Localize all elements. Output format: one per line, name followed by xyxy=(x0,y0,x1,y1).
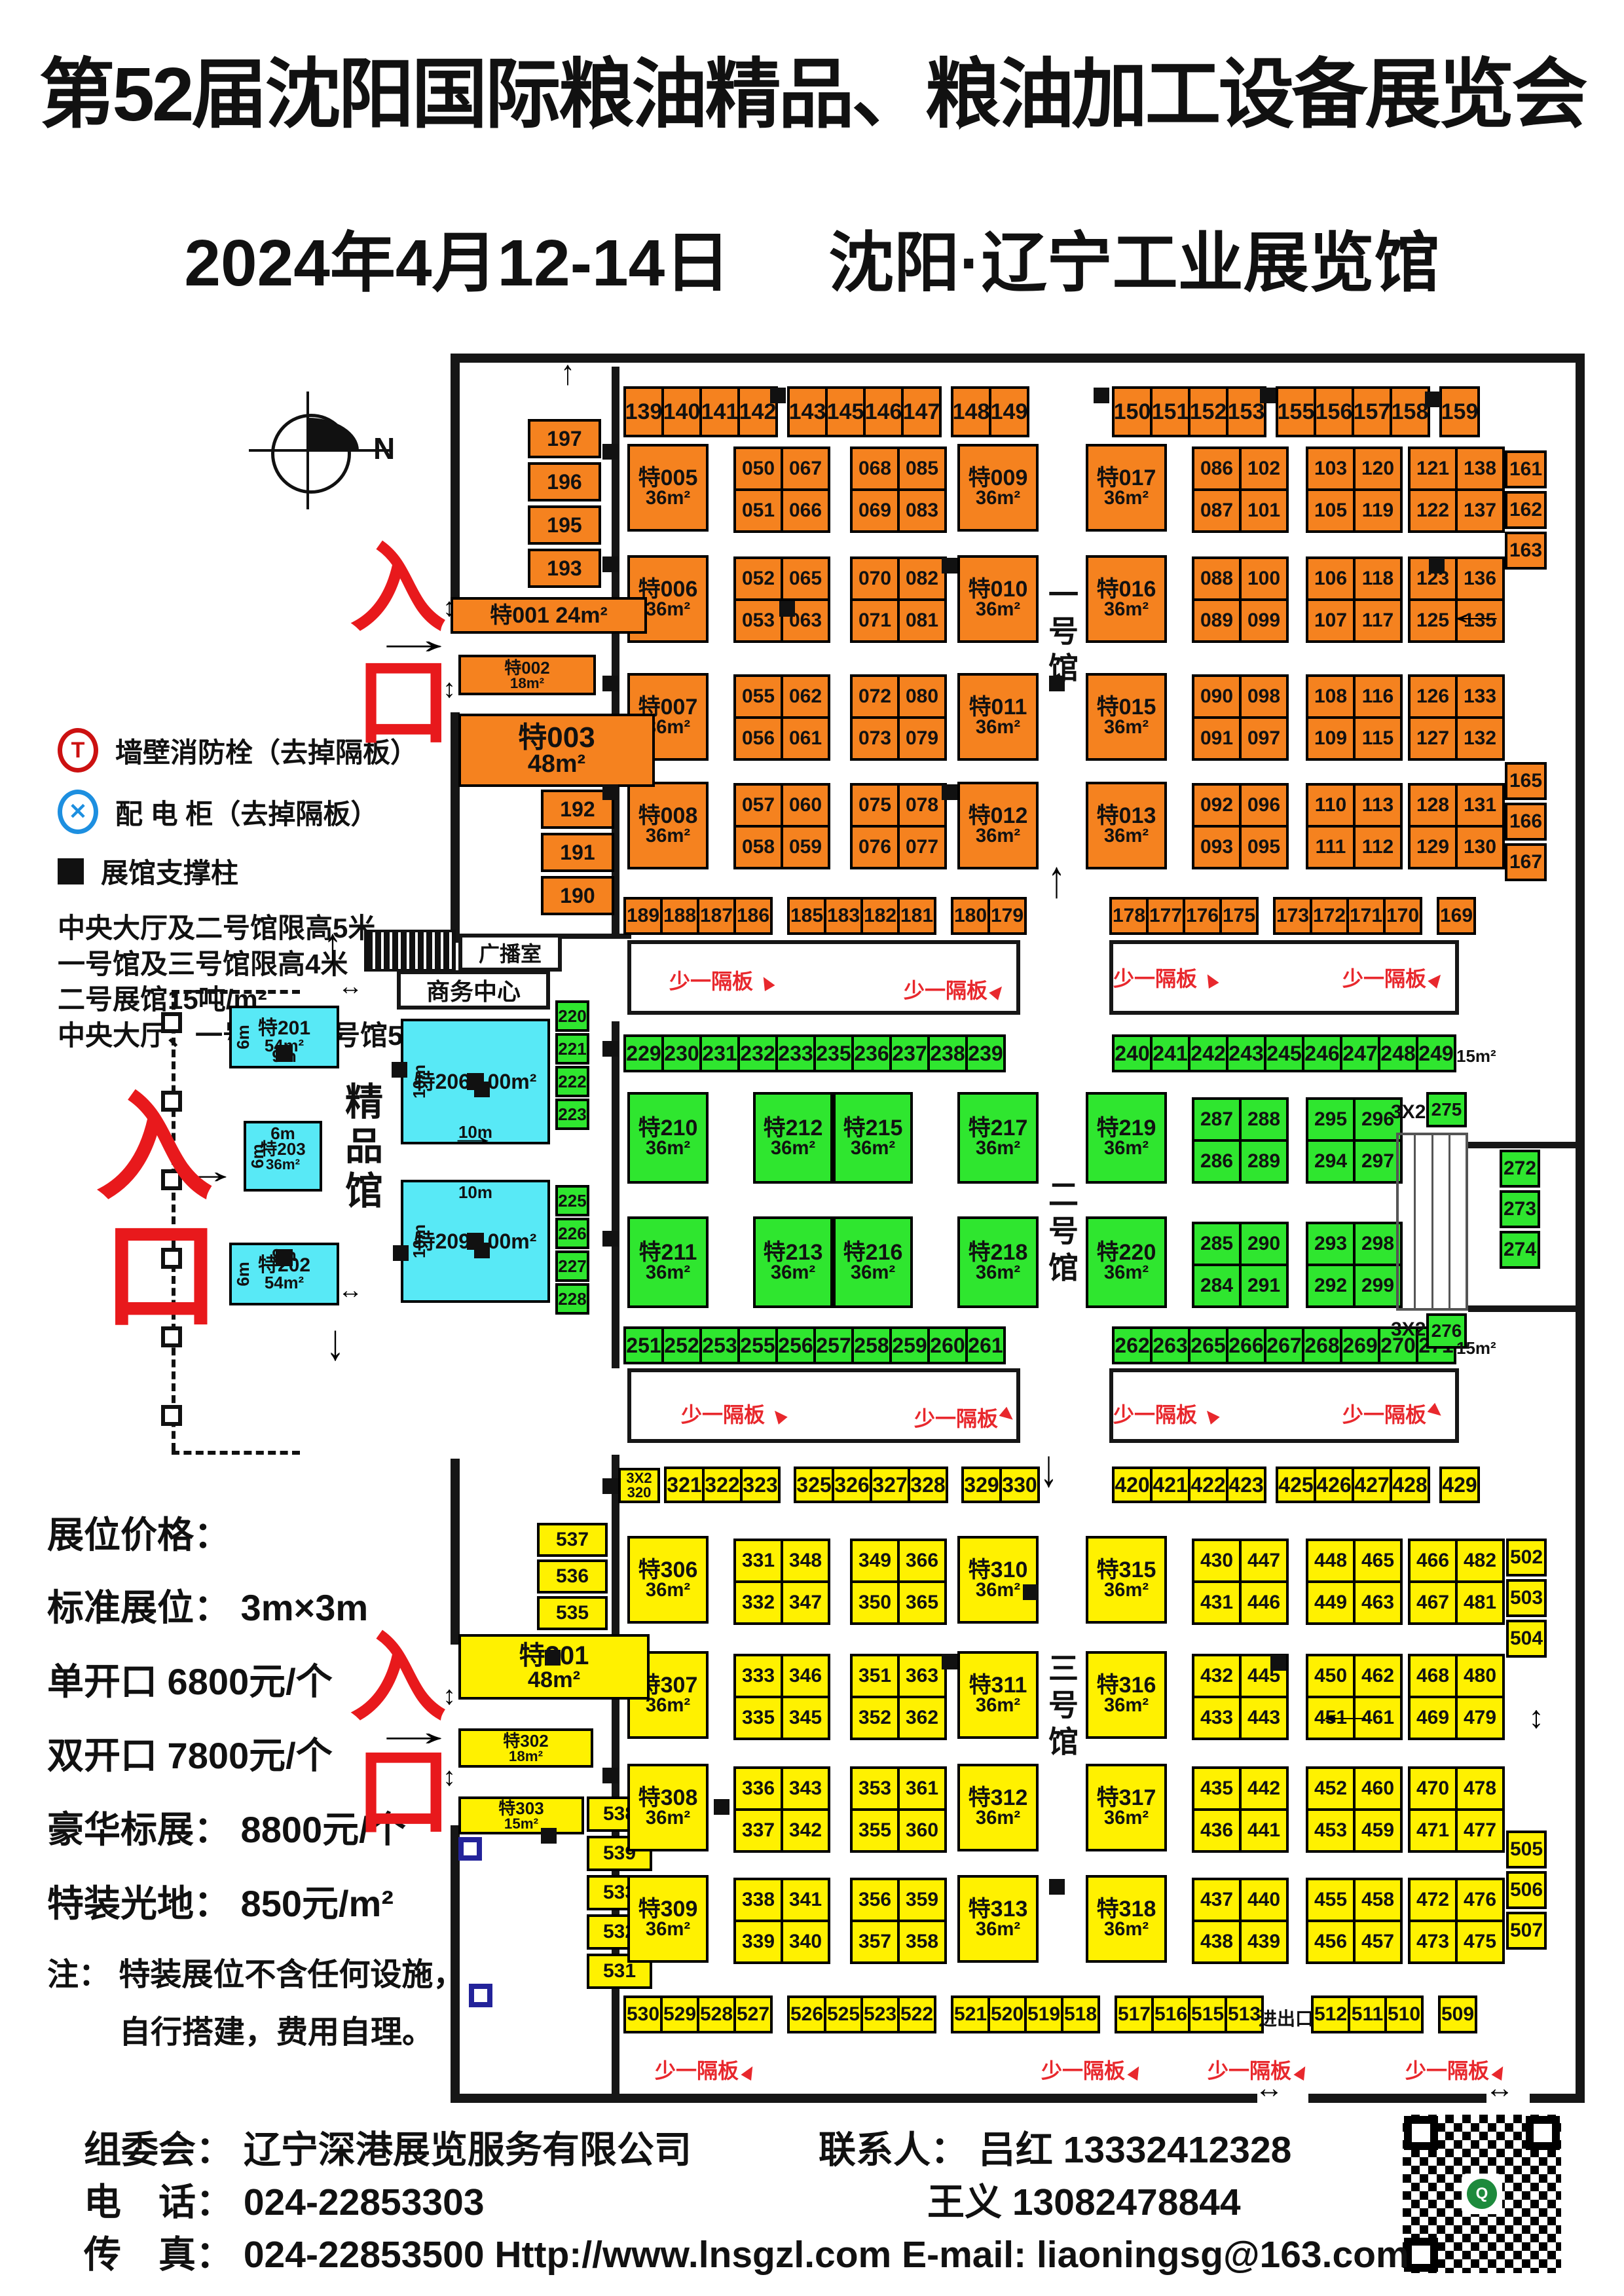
booth-436: 436 xyxy=(1192,1808,1242,1853)
booth-196: 196 xyxy=(528,462,601,501)
booth-252: 252 xyxy=(661,1326,702,1364)
booth-358: 358 xyxy=(897,1920,947,1964)
wall xyxy=(451,354,460,623)
booth-537: 537 xyxy=(537,1523,608,1557)
pillar-icon xyxy=(1049,676,1065,691)
booth-246: 246 xyxy=(1302,1034,1342,1072)
booth-433: 433 xyxy=(1192,1696,1242,1740)
booth-257: 257 xyxy=(813,1326,854,1364)
dimension-label: 6m xyxy=(249,1144,266,1169)
north-label: N xyxy=(373,431,395,466)
wall xyxy=(1468,1305,1576,1312)
booth-426: 426 xyxy=(1314,1467,1354,1503)
booth-231: 231 xyxy=(699,1034,740,1072)
booth-345: 345 xyxy=(781,1696,830,1740)
booth-360: 360 xyxy=(897,1808,947,1853)
booth-108: 108 xyxy=(1306,674,1356,719)
booth-080: 080 xyxy=(897,674,947,719)
booth-113: 113 xyxy=(1353,783,1403,828)
red-arrow-icon xyxy=(1127,2058,1147,2081)
booth-478: 478 xyxy=(1455,1766,1505,1811)
pillar-icon xyxy=(602,1768,618,1783)
booth-458: 458 xyxy=(1353,1878,1403,1922)
booth-155: 155 xyxy=(1276,386,1316,437)
qr-logo: Q xyxy=(1462,2174,1502,2214)
qr-code: Q xyxy=(1403,2115,1561,2273)
booth-090: 090 xyxy=(1192,674,1242,719)
booth-106: 106 xyxy=(1306,556,1356,601)
booth-527: 527 xyxy=(733,1995,773,2033)
booth-082: 082 xyxy=(897,556,947,601)
booth-536: 536 xyxy=(537,1559,608,1594)
dashed-boundary xyxy=(172,1451,300,1455)
booth-437: 437 xyxy=(1192,1878,1242,1922)
booth-463: 463 xyxy=(1353,1580,1403,1625)
booth-149: 149 xyxy=(989,386,1029,437)
booth-457: 457 xyxy=(1353,1920,1403,1964)
pillar-icon xyxy=(942,784,957,800)
booth-132: 132 xyxy=(1455,716,1505,761)
booth-067: 067 xyxy=(781,446,830,491)
booth-068: 068 xyxy=(850,446,900,491)
booth-233: 233 xyxy=(775,1034,816,1072)
booth-262: 262 xyxy=(1112,1326,1153,1364)
booth-443: 443 xyxy=(1239,1696,1289,1740)
qr-finder xyxy=(1404,2116,1438,2150)
booth-特013: 特01336m² xyxy=(1086,782,1167,869)
booth-225: 225 xyxy=(555,1185,589,1216)
booth-220: 220 xyxy=(555,1000,589,1032)
booth-223: 223 xyxy=(555,1099,589,1130)
partition-note: 少一隔板 xyxy=(904,974,1009,1004)
booth-452: 452 xyxy=(1306,1766,1356,1811)
booth-141: 141 xyxy=(699,386,740,437)
booth-191: 191 xyxy=(541,833,614,872)
booth-092: 092 xyxy=(1192,783,1242,828)
booth-238: 238 xyxy=(927,1034,968,1072)
booth-521: 521 xyxy=(951,1995,990,2033)
booth-131: 131 xyxy=(1455,783,1505,828)
booth-435: 435 xyxy=(1192,1766,1242,1811)
booth-472: 472 xyxy=(1408,1878,1458,1922)
booth-232: 232 xyxy=(737,1034,778,1072)
booth-350: 350 xyxy=(850,1580,900,1625)
red-arrow-icon xyxy=(1199,966,1219,989)
booth-519: 519 xyxy=(1024,1995,1063,2033)
booth-120: 120 xyxy=(1353,446,1403,491)
booth-特220: 特22036m² xyxy=(1086,1216,1167,1308)
booth-227: 227 xyxy=(555,1250,589,1282)
hall-label: 二号馆 xyxy=(1040,1178,1083,1288)
booth-529: 529 xyxy=(660,1995,699,2033)
booth-516: 516 xyxy=(1151,1995,1190,2033)
power-box-icon xyxy=(458,1837,482,1861)
booth-178: 178 xyxy=(1109,897,1149,935)
pillar-icon xyxy=(1049,1879,1065,1895)
booth-349: 349 xyxy=(850,1539,900,1583)
booth-058: 058 xyxy=(733,825,783,869)
booth-523: 523 xyxy=(860,1995,900,2033)
booth-441: 441 xyxy=(1239,1808,1289,1853)
booth-特203: 特20336m²6m6m xyxy=(244,1121,322,1192)
booth-179: 179 xyxy=(987,897,1027,935)
booth-062: 062 xyxy=(781,674,830,719)
pillar-icon xyxy=(602,1041,618,1057)
phone: 电 话： 024-22853303 xyxy=(84,2181,485,2223)
booth-446: 446 xyxy=(1239,1580,1289,1625)
contact-person-2: 王义 13082478844 xyxy=(927,2172,1241,2226)
booth-121: 121 xyxy=(1408,446,1458,491)
booth-057: 057 xyxy=(733,783,783,828)
booth-326: 326 xyxy=(832,1467,872,1503)
booth-111: 111 xyxy=(1306,825,1356,869)
booth-421: 421 xyxy=(1150,1467,1190,1503)
booth-468: 468 xyxy=(1408,1654,1458,1698)
booth-526: 526 xyxy=(787,1995,826,2033)
booth-056: 056 xyxy=(733,716,783,761)
booth-229: 229 xyxy=(623,1034,664,1072)
dimension-label: 10m xyxy=(458,1184,492,1201)
booth-462: 462 xyxy=(1353,1654,1403,1698)
dimension-label: 6m xyxy=(234,1025,251,1049)
booth-079: 079 xyxy=(897,716,947,761)
booth-522: 522 xyxy=(897,1995,936,2033)
booth-247: 247 xyxy=(1340,1034,1380,1072)
compass-icon xyxy=(306,392,309,509)
booth-243: 243 xyxy=(1226,1034,1266,1072)
booth-286: 286 xyxy=(1192,1139,1242,1184)
booth-特317: 特31736m² xyxy=(1086,1764,1167,1851)
booth-105: 105 xyxy=(1306,488,1356,533)
booth-特218: 特21836m² xyxy=(957,1216,1039,1308)
direction-arrow-icon: ↓ xyxy=(1040,1442,1058,1495)
booth-471: 471 xyxy=(1408,1808,1458,1853)
booth-193: 193 xyxy=(528,549,601,588)
pillar-icon xyxy=(1425,392,1441,407)
booth-109: 109 xyxy=(1306,716,1356,761)
entrance-label: 入 xyxy=(350,1630,447,1727)
booth-050: 050 xyxy=(733,446,783,491)
booth-235: 235 xyxy=(813,1034,854,1072)
booth-293: 293 xyxy=(1306,1222,1356,1266)
pillar-icon xyxy=(1023,1584,1039,1600)
booth-274: 274 xyxy=(1500,1231,1540,1269)
partition-note: 少一隔板 xyxy=(914,1402,1020,1432)
compass-icon xyxy=(308,418,359,450)
booth-502: 502 xyxy=(1506,1539,1547,1576)
booth-470: 470 xyxy=(1408,1766,1458,1811)
booth-197: 197 xyxy=(528,419,601,458)
booth-特316: 特31636m² xyxy=(1086,1651,1167,1739)
booth-511: 511 xyxy=(1348,1995,1387,2033)
booth-260: 260 xyxy=(927,1326,968,1364)
booth-460: 460 xyxy=(1353,1766,1403,1811)
wall xyxy=(451,354,1585,363)
booth-481: 481 xyxy=(1455,1580,1505,1625)
booth-363: 363 xyxy=(897,1654,947,1698)
booth-479: 479 xyxy=(1455,1696,1505,1740)
booth-161: 161 xyxy=(1505,450,1547,488)
wall xyxy=(1468,1142,1576,1148)
booth-162: 162 xyxy=(1505,491,1547,529)
booth-180: 180 xyxy=(951,897,990,935)
exhibition-floorplan-poster: 第52届沈阳国际粮油精品、粮油加工设备展览会 2024年4月12-14日 沈阳·… xyxy=(0,0,1624,2296)
booth-336: 336 xyxy=(733,1766,783,1811)
booth-182: 182 xyxy=(860,897,900,935)
booth-140: 140 xyxy=(661,386,702,437)
booth-273: 273 xyxy=(1500,1190,1540,1228)
direction-arrow-icon: ↕ xyxy=(1528,1702,1544,1734)
wall xyxy=(451,1459,460,1645)
wall xyxy=(1576,354,1585,2103)
booth-226: 226 xyxy=(555,1218,589,1249)
hall-label: 精品馆 xyxy=(333,1082,388,1215)
booth-101: 101 xyxy=(1239,488,1289,533)
booth-331: 331 xyxy=(733,1539,783,1583)
booth-098: 098 xyxy=(1239,674,1289,719)
booth-特002: 特00218m² xyxy=(458,655,596,695)
pillar-icon xyxy=(602,1478,618,1494)
booth-221: 221 xyxy=(555,1033,589,1065)
booth-147: 147 xyxy=(901,386,942,437)
booth-329: 329 xyxy=(961,1467,1002,1503)
pillar-icon xyxy=(276,1249,293,1266)
booth-275: 275 xyxy=(1426,1092,1467,1127)
booth-特017: 特01736m² xyxy=(1086,444,1167,532)
pillar-icon xyxy=(474,1082,490,1097)
booth-085: 085 xyxy=(897,446,947,491)
booth-292: 292 xyxy=(1306,1264,1356,1308)
booth-295: 295 xyxy=(1306,1097,1356,1142)
red-arrow-icon xyxy=(1293,2058,1313,2081)
booth-076: 076 xyxy=(850,825,900,869)
booth-420: 420 xyxy=(1112,1467,1153,1503)
booth-特003: 特00348m² xyxy=(458,714,655,787)
booth-151: 151 xyxy=(1150,386,1190,437)
booth-186: 186 xyxy=(733,897,773,935)
pillar-icon xyxy=(1094,388,1109,403)
fax-web-email: 传 真： 024-22853500 Http://www.lnsgzl.com … xyxy=(84,2234,1409,2276)
booth-157: 157 xyxy=(1352,386,1392,437)
booth-特215: 特21536m² xyxy=(833,1092,913,1184)
red-arrow-icon xyxy=(1428,966,1449,989)
booth-525: 525 xyxy=(824,1995,863,2033)
booth-449: 449 xyxy=(1306,1580,1356,1625)
direction-arrow-icon: ↑ xyxy=(561,356,575,391)
booth-071: 071 xyxy=(850,598,900,643)
booth-335: 335 xyxy=(733,1696,783,1740)
booth-195: 195 xyxy=(528,505,601,545)
direction-arrow-icon: ← xyxy=(1441,598,1511,630)
pillar-icon xyxy=(602,676,618,691)
booth-356: 356 xyxy=(850,1878,900,1922)
contact-info: 组委会： 辽宁深港展览服务有限公司 联系人： 吕红 13332412328 电 … xyxy=(84,2120,1409,2277)
red-arrow-icon xyxy=(741,2058,760,2081)
booth-052: 052 xyxy=(733,556,783,601)
booth-453: 453 xyxy=(1306,1808,1356,1853)
direction-arrow-icon: ↓ xyxy=(326,1317,344,1368)
escalator-icon xyxy=(1396,1133,1468,1311)
booth-特308: 特30836m² xyxy=(627,1764,709,1851)
booth-175: 175 xyxy=(1219,897,1259,935)
booth-078: 078 xyxy=(897,783,947,828)
booth-477: 477 xyxy=(1455,1808,1505,1853)
booth-081: 081 xyxy=(897,598,947,643)
booth-256: 256 xyxy=(775,1326,816,1364)
booth-187: 187 xyxy=(697,897,736,935)
booth-特016: 特01636m² xyxy=(1086,555,1167,643)
booth-177: 177 xyxy=(1146,897,1185,935)
booth-330: 330 xyxy=(999,1467,1040,1503)
booth-126: 126 xyxy=(1408,674,1458,719)
booth-173: 173 xyxy=(1273,897,1312,935)
pillar-icon xyxy=(770,388,786,403)
booth-148: 148 xyxy=(951,386,991,437)
pillar-icon xyxy=(541,1828,557,1844)
booth-432: 432 xyxy=(1192,1654,1242,1698)
booth-333: 333 xyxy=(733,1654,783,1698)
pillar-icon xyxy=(393,1245,409,1261)
entrance-label: 口 xyxy=(355,655,452,752)
pillar-icon xyxy=(602,556,618,572)
booth-100: 100 xyxy=(1239,556,1289,601)
partition-note: 少一隔板 xyxy=(655,2054,760,2085)
booth-359: 359 xyxy=(897,1878,947,1922)
booth-069: 069 xyxy=(850,488,900,533)
booth-340: 340 xyxy=(781,1920,830,1964)
qr-finder xyxy=(1526,2116,1560,2150)
booth-475: 475 xyxy=(1455,1920,1505,1964)
booth-特311: 特31136m² xyxy=(957,1651,1039,1739)
booth-365: 365 xyxy=(897,1580,947,1625)
booth-427: 427 xyxy=(1352,1467,1392,1503)
booth-255: 255 xyxy=(737,1326,778,1364)
entrance-label: 入 xyxy=(96,1089,213,1207)
booth-051: 051 xyxy=(733,488,783,533)
text-label: 进出口 xyxy=(1259,2005,1314,2031)
booth-172: 172 xyxy=(1310,897,1349,935)
booth-261: 261 xyxy=(965,1326,1006,1364)
booth-503: 503 xyxy=(1506,1579,1547,1617)
booth-181: 181 xyxy=(897,897,936,935)
direction-arrow-icon: ↔ xyxy=(338,1278,363,1303)
booth-119: 119 xyxy=(1353,488,1403,533)
booth-253: 253 xyxy=(699,1326,740,1364)
dimension-label: 6m xyxy=(270,1125,295,1142)
booth-361: 361 xyxy=(897,1766,947,1811)
booth-289: 289 xyxy=(1239,1139,1289,1184)
booth-366: 366 xyxy=(897,1539,947,1583)
pillar-icon xyxy=(942,558,957,574)
booth-188: 188 xyxy=(660,897,699,935)
booth-467: 467 xyxy=(1408,1580,1458,1625)
booth-431: 431 xyxy=(1192,1580,1242,1625)
text-label: 15m² xyxy=(1456,1046,1496,1066)
booth-099: 099 xyxy=(1239,598,1289,643)
booth-236: 236 xyxy=(851,1034,892,1072)
booth-269: 269 xyxy=(1340,1326,1380,1364)
booth-428: 428 xyxy=(1390,1467,1430,1503)
booth-287: 287 xyxy=(1192,1097,1242,1142)
entrance-label: 口 xyxy=(355,1744,452,1841)
direction-arrow-icon: ← xyxy=(1310,1698,1380,1730)
booth-156: 156 xyxy=(1314,386,1354,437)
booth-425: 425 xyxy=(1276,1467,1316,1503)
booth-176: 176 xyxy=(1183,897,1222,935)
booth-143: 143 xyxy=(787,386,828,437)
booth-158: 158 xyxy=(1390,386,1430,437)
booth-097: 097 xyxy=(1239,716,1289,761)
booth-266: 266 xyxy=(1226,1326,1266,1364)
booth-138: 138 xyxy=(1455,446,1505,491)
dashed-boundary xyxy=(172,990,300,994)
booth-357: 357 xyxy=(850,1920,900,1964)
booth-特010: 特01036m² xyxy=(957,555,1039,643)
partition-note: 少一隔板 xyxy=(1113,1398,1219,1429)
booth-509: 509 xyxy=(1438,1995,1477,2033)
pillar-icon xyxy=(474,1243,490,1258)
booth-112: 112 xyxy=(1353,825,1403,869)
booth-146: 146 xyxy=(863,386,904,437)
booth-228: 228 xyxy=(555,1283,589,1315)
booth-473: 473 xyxy=(1408,1920,1458,1964)
pillar-icon xyxy=(545,1650,561,1666)
booth-075: 075 xyxy=(850,783,900,828)
booth-241: 241 xyxy=(1150,1034,1190,1072)
booth-528: 528 xyxy=(697,1995,736,2033)
booth-095: 095 xyxy=(1239,825,1289,869)
booth-347: 347 xyxy=(781,1580,830,1625)
booth-特301: 特30148m² xyxy=(458,1634,650,1700)
pillar-icon xyxy=(602,444,618,460)
booth-137: 137 xyxy=(1455,488,1505,533)
booth-423: 423 xyxy=(1226,1467,1266,1503)
pillar-icon xyxy=(602,1231,618,1247)
booth-288: 288 xyxy=(1239,1097,1289,1142)
booth-245: 245 xyxy=(1264,1034,1304,1072)
pillar-icon xyxy=(1429,558,1445,574)
hall-label: 三号馆 xyxy=(1040,1652,1083,1762)
booth-239: 239 xyxy=(965,1034,1006,1072)
direction-arrow-icon: ↑ xyxy=(1048,853,1065,906)
booth-504: 504 xyxy=(1506,1620,1547,1658)
booth-165: 165 xyxy=(1505,762,1547,800)
wall xyxy=(1308,2094,1486,2103)
booth-267: 267 xyxy=(1264,1326,1304,1364)
booth-251: 251 xyxy=(623,1326,664,1364)
booth-特009: 特00936m² xyxy=(957,444,1039,532)
booth-438: 438 xyxy=(1192,1920,1242,1964)
booth-455: 455 xyxy=(1306,1878,1356,1922)
booth-166: 166 xyxy=(1505,803,1547,841)
booth-118: 118 xyxy=(1353,556,1403,601)
booth-258: 258 xyxy=(851,1326,892,1364)
booth-265: 265 xyxy=(1188,1326,1228,1364)
booth-122: 122 xyxy=(1408,488,1458,533)
direction-arrow-icon: ↑ xyxy=(323,920,342,971)
booth-127: 127 xyxy=(1408,716,1458,761)
booth-339: 339 xyxy=(733,1920,783,1964)
booth-特306: 特30636m² xyxy=(627,1536,709,1624)
booth-059: 059 xyxy=(781,825,830,869)
booth-170: 170 xyxy=(1383,897,1422,935)
booth-特015: 特01536m² xyxy=(1086,673,1167,761)
booth-448: 448 xyxy=(1306,1539,1356,1583)
booth-320: 3X2320 xyxy=(618,1468,660,1503)
booth-259: 259 xyxy=(889,1326,930,1364)
booth-077: 077 xyxy=(897,825,947,869)
booth-特011: 特01136m² xyxy=(957,673,1039,761)
